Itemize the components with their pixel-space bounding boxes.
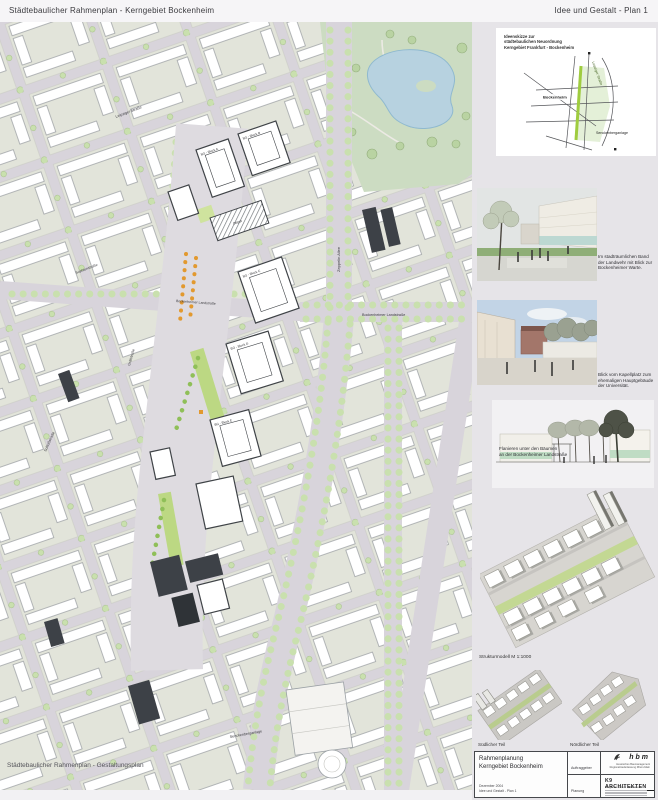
client-logo: hbm	[629, 754, 650, 761]
sheet-header: Städtebaulicher Rahmenplan - Kerngebiet …	[0, 0, 658, 22]
client-label: Auftraggeber	[571, 766, 592, 770]
street-label-zeppelinallee: Zeppelin Allee	[336, 246, 341, 272]
model-photo-south-caption: Südlicher Teil	[478, 742, 505, 747]
view3-caption: Flanieren unter den Bäumen an der Bocken…	[499, 446, 567, 457]
perspective-view-1	[477, 188, 597, 281]
planner-sub: Borgards . Lösch . Piribauer	[605, 785, 640, 789]
project-plan-line: Idee und Gestalt - Plan 1	[479, 789, 517, 793]
perspective-view-2	[477, 300, 597, 385]
locator-caption-line3: Kerngebiet Frankfurt - Bockenheim	[504, 45, 574, 50]
map-overlay-caption: Städtebaulicher Rahmenplan - Gestaltungs…	[7, 762, 144, 769]
model-photo-north	[568, 670, 654, 740]
planner-logo-cell: K9 ARCHITEKTEN Borgards . Lösch . Piriba…	[600, 775, 654, 798]
locator-label-senckenberganlage: Senckenberganlage	[596, 131, 628, 135]
sheet-title-right: Idee und Gestalt - Plan 1	[555, 6, 649, 15]
project-date: Dezember 2004 Idee und Gestalt - Plan 1	[479, 784, 517, 793]
structure-model	[480, 490, 656, 652]
view3-caption-line2: an der Bockenheimer Landstraße	[499, 452, 567, 458]
view3-caption-line1: Flanieren unter den Bäumen	[499, 446, 567, 452]
perspective-view-3	[492, 400, 654, 488]
project-name: Rahmenplanung Kerngebiet Bockenheim	[479, 756, 543, 771]
map-canvas: BG - Block A BG - Block B BG - Block C B…	[0, 22, 472, 790]
round-building	[318, 750, 346, 778]
locator-label-bockenheim: Bockenheim	[543, 95, 567, 100]
model-photo-north-caption: Nördlicher Teil	[570, 742, 599, 747]
sidebar: Ideenskizze zur städtebaulichen Neuordnu…	[472, 22, 658, 800]
street-label-bockenheimer: Bockenheimer Landstraße	[362, 313, 405, 317]
hbm-mark-icon	[613, 753, 621, 761]
title-block-project-cell: Rahmenplanung Kerngebiet Bockenheim Deze…	[475, 752, 568, 797]
planner-label: Planung	[571, 789, 584, 793]
client-label-cell: Auftraggeber	[568, 752, 600, 775]
title-block: Rahmenplanung Kerngebiet Bockenheim Deze…	[474, 751, 655, 798]
planner-label-cell: Planung	[568, 775, 600, 798]
locator-caption: Ideenskizze zur städtebaulichen Neuordnu…	[504, 34, 574, 50]
master-plan-map: BG - Block A BG - Block B BG - Block C B…	[0, 22, 472, 790]
view1-caption: Im stadträumlichen Band der Landwehr mit…	[598, 254, 655, 271]
locator-card: Ideenskizze zur städtebaulichen Neuordnu…	[496, 28, 656, 156]
model-photo-south	[476, 670, 562, 740]
client-sub2: Regionalniederlassung Rhein-Main	[610, 766, 650, 769]
planner-address-lines	[605, 789, 647, 796]
project-name-line1: Rahmenplanung	[479, 756, 543, 764]
sheet-title-left: Städtebaulicher Rahmenplan - Kerngebiet …	[9, 6, 214, 15]
client-logo-cell: hbm Hessisches Baumanagement Regionalnie…	[600, 752, 654, 775]
view2-caption: Blick vom Kapellplatz zum ehemaligen Hau…	[598, 372, 655, 389]
client-sub: Hessisches Baumanagement Regionalniederl…	[610, 763, 650, 770]
project-name-line2: Kerngebiet Bockenheim	[479, 764, 543, 772]
structure-model-caption: Strukturmodell M 1:1000	[479, 655, 531, 660]
